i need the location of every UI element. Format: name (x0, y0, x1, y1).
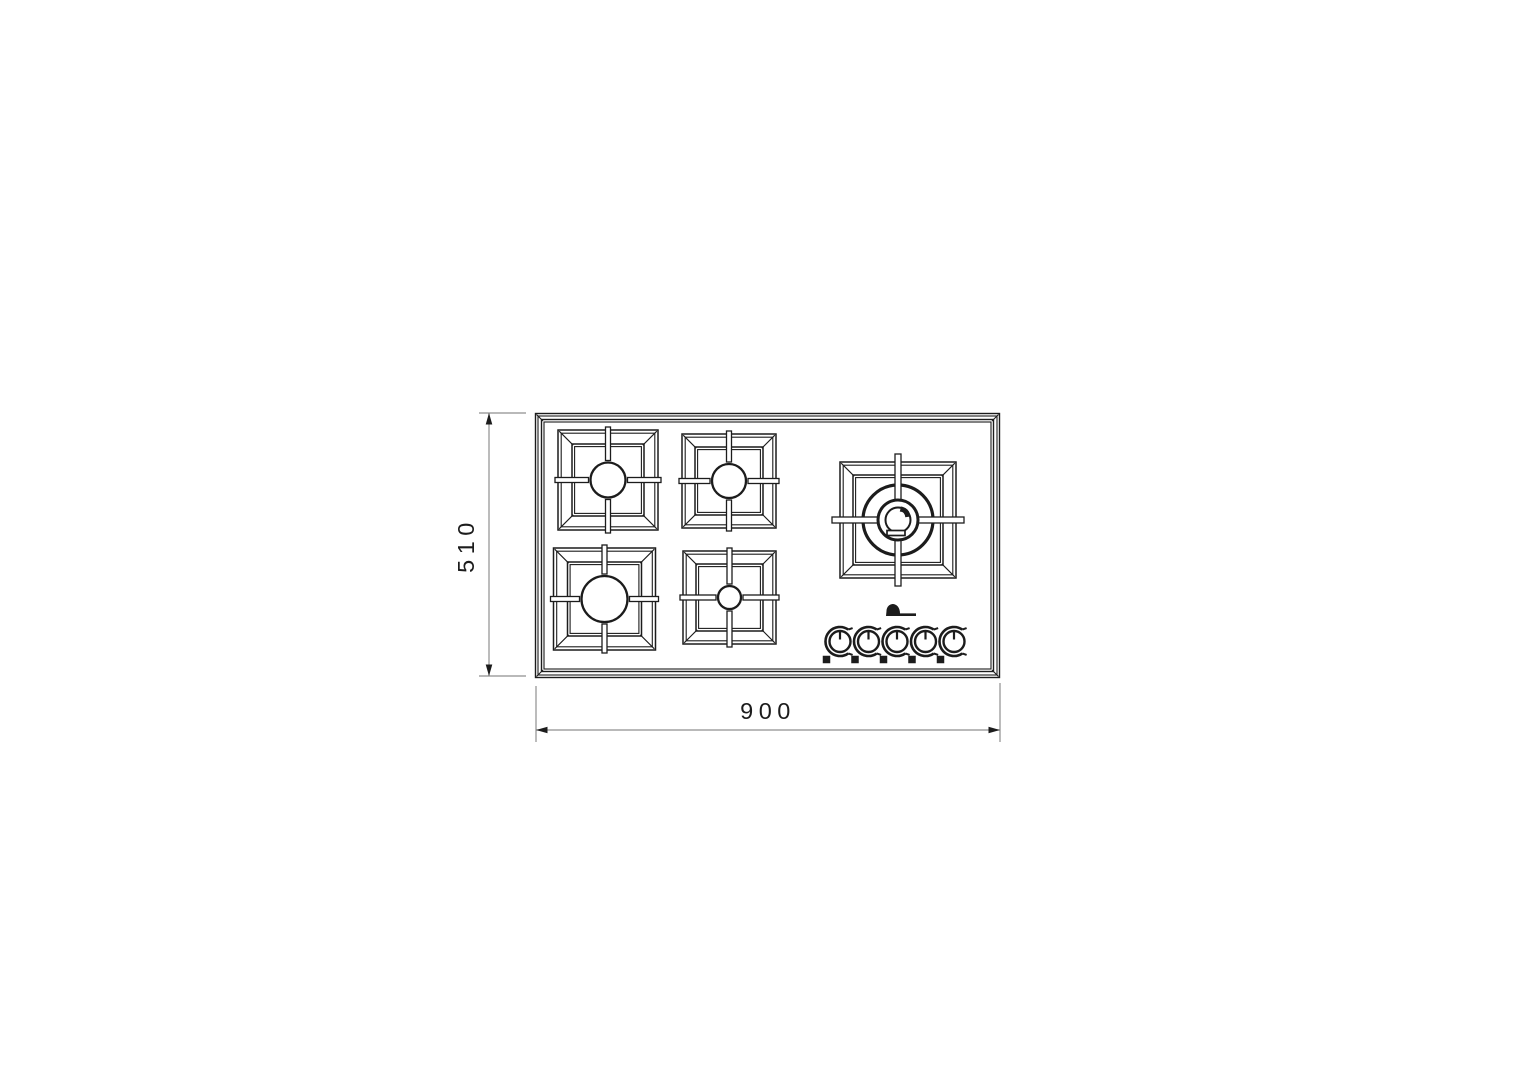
burner-position-marker (880, 656, 888, 664)
grate-bar-top (895, 454, 901, 500)
knob-arc-end-tick (962, 628, 966, 630)
burner-rear-center (679, 431, 779, 531)
grate-bar-bottom (895, 540, 901, 586)
wok-thermocouple-mark (887, 531, 905, 536)
burner-cap-circle (718, 586, 741, 609)
burner-grates (551, 427, 780, 653)
burner-front-center (680, 548, 779, 647)
knob-arc-end-tick (934, 628, 938, 630)
arrowhead-left (536, 727, 548, 734)
grate-bar-bottom (727, 611, 732, 647)
width-dimension-label: 900 (740, 698, 796, 724)
technical-drawing-canvas: 510 900 (0, 0, 1536, 1087)
grate-bar-bottom (727, 500, 732, 531)
control-knob-1 (823, 627, 853, 663)
wok-burner-grate (832, 454, 964, 586)
burner-position-marker (937, 656, 945, 664)
burner-cap-circle (712, 464, 746, 498)
burner-cap-circle (591, 463, 626, 498)
grate-bar-bottom (606, 500, 611, 534)
control-knob-5 (937, 627, 967, 663)
grate-bar-right (918, 517, 964, 523)
grate-bar-left (832, 517, 878, 523)
knob-arc-end-tick (877, 628, 881, 630)
grate-bar-bottom (602, 624, 607, 653)
knob-arc-end-tick (877, 653, 881, 655)
arrowhead-up (486, 413, 493, 425)
burner-rear-left (555, 427, 661, 533)
knob-arc-end-tick (934, 653, 938, 655)
grate-bar-left (555, 478, 589, 483)
control-knob-4 (908, 627, 938, 663)
burner-wok-right (832, 454, 964, 586)
knob-arc-end-tick (905, 628, 909, 630)
grate-bar-right (748, 479, 779, 484)
grate-bar-left (679, 479, 710, 484)
burner-position-marker (823, 656, 831, 664)
knob-arc-end-tick (962, 653, 966, 655)
knob-arc-end-tick (848, 653, 852, 655)
knob-arc-end-tick (848, 628, 852, 630)
grate-bar-right (628, 478, 662, 483)
control-knob-3 (880, 627, 910, 663)
height-dimension-label: 510 (453, 517, 479, 573)
burner-position-marker (851, 656, 859, 664)
brand-logo (886, 604, 916, 616)
brand-logo-mark (886, 604, 916, 616)
grate-bar-top (727, 548, 732, 584)
grate-bar-right (630, 597, 659, 602)
burner-front-left (551, 545, 659, 653)
control-knob-2 (851, 627, 881, 663)
grate-bar-right (743, 595, 779, 600)
control-knobs (823, 627, 967, 663)
burner-cap-circle (582, 576, 628, 622)
burner-position-marker (908, 656, 916, 664)
grate-bar-left (680, 595, 716, 600)
grate-bar-top (606, 427, 611, 461)
grate-bar-top (727, 431, 732, 462)
grate-bar-left (551, 597, 580, 602)
knob-arc-end-tick (905, 653, 909, 655)
arrowhead-down (486, 665, 493, 677)
grate-bar-top (602, 545, 607, 574)
arrowhead-right (989, 727, 1001, 734)
